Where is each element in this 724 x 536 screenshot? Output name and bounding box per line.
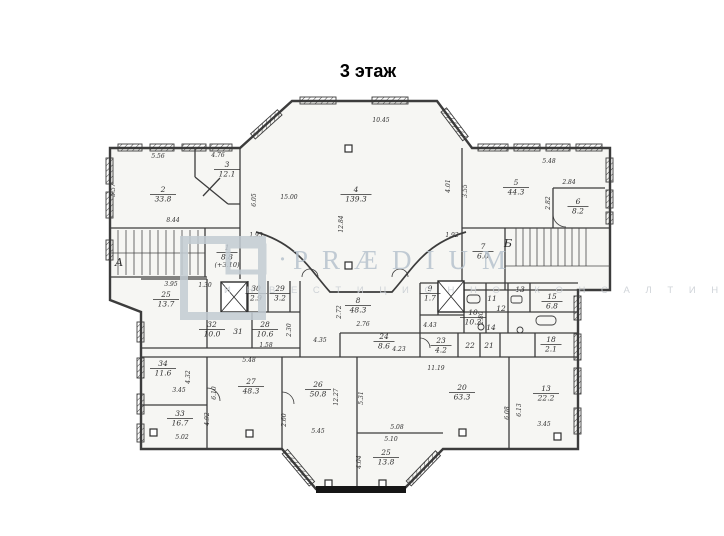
room-num-text: 33 — [175, 409, 185, 418]
room-num-text: 23 — [435, 336, 446, 345]
dim-text: 2.84 — [561, 179, 576, 186]
dim-text: 1.30 — [198, 282, 212, 289]
room-num-text: 8 — [356, 296, 361, 305]
dim-text: 8.44 — [166, 217, 180, 224]
room-area-text: 4.2 — [434, 346, 447, 355]
room-area-text: 48.3 — [349, 306, 367, 315]
dim-text: 4.32 — [185, 370, 192, 385]
dim-text: 5.45 — [311, 428, 325, 435]
dim-text: 6.08 — [504, 406, 511, 420]
dim-text: 3.45 — [537, 421, 551, 428]
dim-text: 2.82 — [545, 196, 552, 211]
room-num-text: 14 — [486, 323, 496, 332]
room-num-text: 6 — [576, 197, 581, 206]
dim-text: 4.01 — [445, 179, 452, 193]
dim-text: 3.45 — [172, 387, 186, 394]
watermark-brand: PRÆDIUM — [293, 245, 520, 275]
room-num-text: 5 — [514, 178, 519, 187]
room-num-text: 27 — [245, 377, 256, 386]
room-label: 21 — [483, 341, 494, 350]
room-num-text: 10 — [468, 308, 478, 317]
dim-text: 5.10 — [384, 436, 398, 443]
room-area-text: 22.2 — [537, 394, 555, 403]
bay-bottom-wall — [316, 486, 406, 493]
dim-text: 2.80 — [478, 311, 485, 326]
floor-plan-page: 3 этаж — [0, 0, 724, 536]
room-num-text: 3 — [225, 160, 230, 169]
dim-text: 2.76 — [355, 321, 370, 328]
room-area-text: 12.1 — [219, 170, 236, 179]
room-num-text: 28 — [259, 320, 270, 329]
room-area-text: 10.0 — [204, 330, 221, 339]
page-title: 3 этаж — [340, 61, 397, 81]
room-num-text: 25 — [160, 290, 171, 299]
dim-text: 5.31 — [358, 391, 365, 404]
dim-text: 4.23 — [391, 346, 406, 353]
room-num-text: 12 — [496, 304, 506, 313]
room-area-text: 8.2 — [572, 207, 584, 216]
dim-text: 5.08 — [390, 424, 404, 431]
room-num-text: 31 — [233, 327, 243, 336]
room-label: 14 — [486, 323, 496, 332]
dim-text: 4.76 — [210, 152, 225, 159]
dim-text: 2.60 — [281, 413, 288, 428]
dim-text: 1.58 — [259, 342, 273, 349]
room-area-text: 63.3 — [454, 393, 471, 402]
room-num-text: 18 — [546, 335, 556, 344]
room-label: 31 — [233, 327, 243, 336]
room-area-text: 16.7 — [172, 419, 189, 428]
dim-text: 4.35 — [312, 337, 327, 344]
room-num-text: 22 — [464, 341, 475, 350]
room-area-text: 13.7 — [158, 300, 175, 309]
room-area-text: 13.8 — [378, 458, 395, 467]
room-num-text: 34 — [158, 359, 168, 368]
dim-text: 12.27 — [333, 388, 340, 405]
room-num-text: 32 — [207, 320, 217, 329]
dim-text: 6.13 — [516, 403, 523, 417]
dim-text: 5.48 — [242, 357, 256, 364]
room-num-text: 13 — [541, 384, 551, 393]
dim-text: 4.92 — [204, 412, 211, 427]
dim-text: 6.10 — [211, 386, 218, 400]
dim-text: 5.56 — [151, 153, 165, 160]
dim-text: 10.45 — [372, 117, 389, 124]
room-area-text: 11.6 — [155, 369, 172, 378]
stair-letter-text: А — [114, 256, 123, 269]
dim-text: 12.84 — [338, 215, 345, 232]
watermark-subtitle: И Н В Е С Т И Ц И О Н Н О - К О Н С А Л … — [224, 285, 724, 296]
dim-text: 5.57 — [110, 183, 117, 197]
dim-text: 6.05 — [251, 193, 258, 207]
dim-text: 2.30 — [286, 323, 293, 338]
dim-text: 15.00 — [280, 194, 297, 201]
room-area-text: 10.6 — [257, 330, 274, 339]
room-num-text: 26 — [312, 380, 323, 389]
room-label: 12 — [496, 304, 506, 313]
room-area-text: 33.8 — [155, 195, 172, 204]
room-area-text: 2.1 — [544, 345, 557, 354]
dim-text: 3.55 — [462, 184, 469, 198]
dim-text: 11.19 — [427, 365, 444, 372]
dim-text: 5.48 — [542, 158, 556, 165]
room-num-text: 4 — [353, 185, 359, 194]
room-label: 22 — [464, 341, 475, 350]
dim-text: 5.02 — [175, 434, 189, 441]
dim-text: 2.72 — [336, 305, 343, 320]
room-num-text: 20 — [456, 383, 467, 392]
room-area-text: 48.3 — [242, 387, 260, 396]
room-area-text: 6.8 — [546, 302, 558, 311]
room-area-text: 50.8 — [310, 390, 327, 399]
dim-text: 1.92 — [445, 232, 459, 239]
room-area-text: 8.6 — [378, 342, 390, 351]
dim-text: 3.95 — [164, 281, 178, 288]
room-num-text: 21 — [483, 341, 494, 350]
room-num-text: 25 — [380, 448, 391, 457]
room-area-text: 44.3 — [507, 188, 525, 197]
room-area-text: 139.3 — [345, 195, 367, 204]
floor-plan-drawing: 3 этаж — [0, 0, 724, 536]
room-num-text: 2 — [160, 185, 166, 194]
dim-text: 4.43 — [422, 322, 437, 329]
room-num-text: 24 — [378, 332, 389, 341]
dim-text: 4.04 — [356, 455, 363, 470]
